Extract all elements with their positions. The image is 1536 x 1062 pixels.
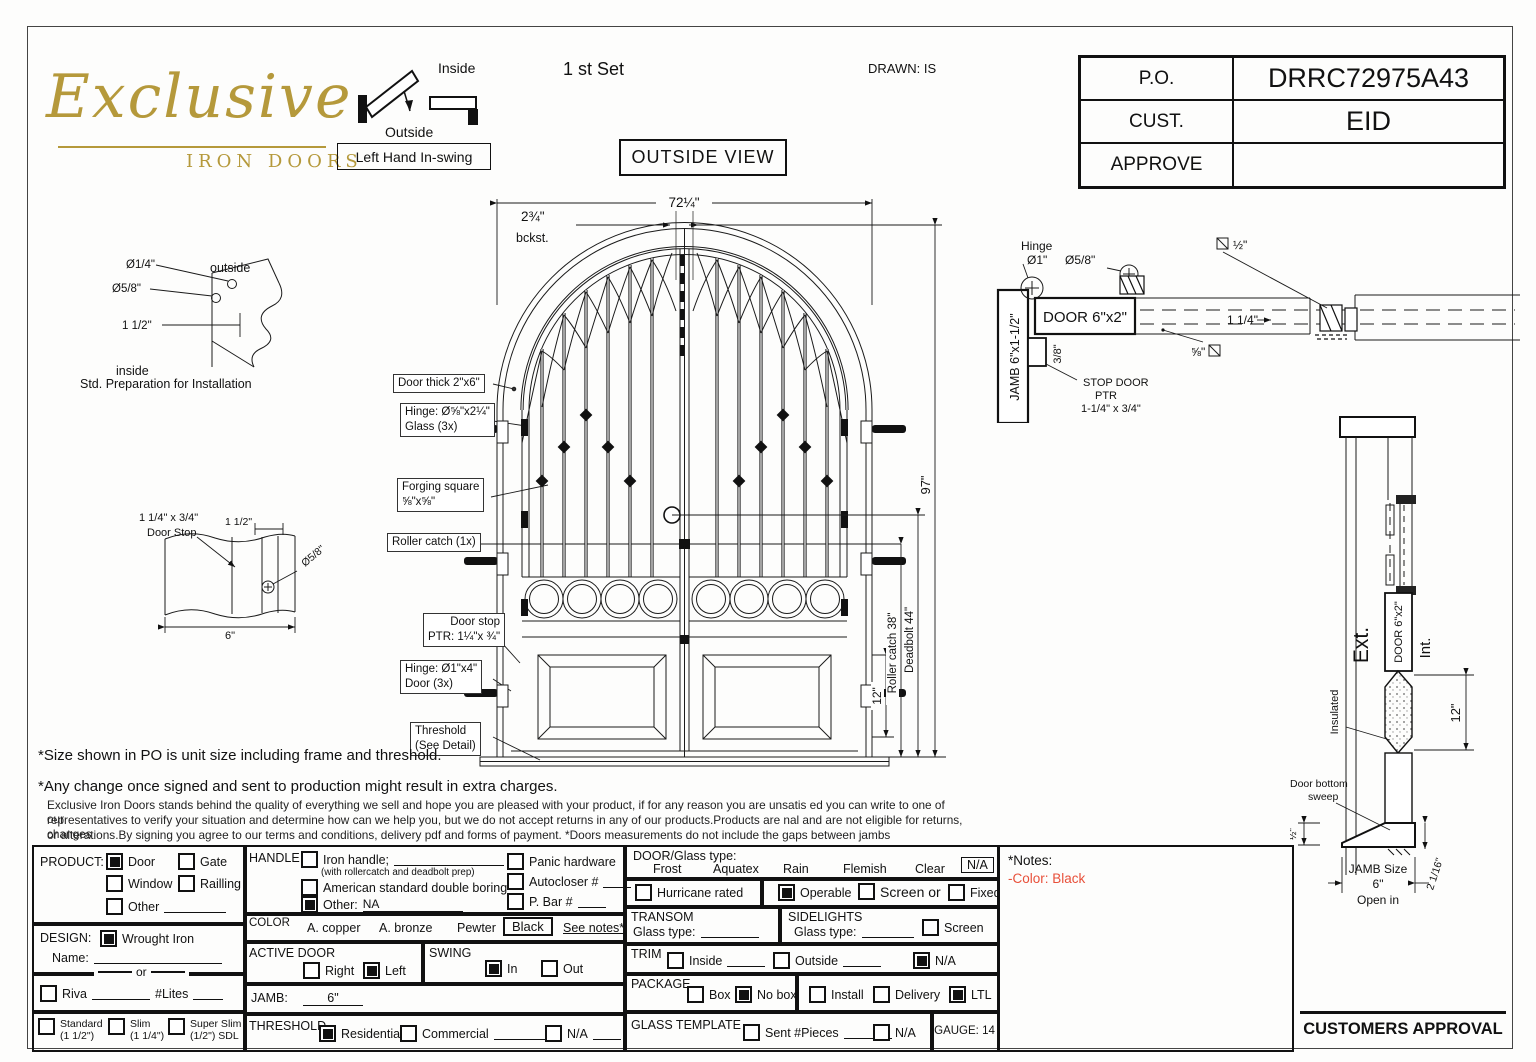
checkbox-hurricane[interactable] [635, 884, 652, 901]
color-see-notes[interactable]: See notes* [563, 921, 624, 935]
checkbox-box[interactable] [687, 986, 704, 1003]
callout-roller-catch: Roller catch (1x) [387, 533, 481, 552]
plan-dim114: 1 1/4" [1227, 313, 1258, 327]
plan-stop1: STOP DOOR [1083, 377, 1149, 389]
transom-label: TRANSOM [631, 910, 694, 924]
pbar-blank[interactable] [578, 896, 606, 908]
american-boring-label: American standard double boring [323, 881, 507, 895]
trim-inside-blank[interactable] [727, 955, 765, 967]
checkbox-product-window[interactable] [106, 875, 123, 892]
checkbox-slim[interactable] [108, 1018, 125, 1035]
checkbox-screen-or[interactable] [858, 883, 875, 900]
design-label: DESIGN: [40, 931, 91, 945]
section-open-in: Open in [1357, 893, 1399, 907]
glass-rain[interactable]: Rain [783, 862, 809, 876]
sidelights-cell: SIDELIGHTS Glass type: Screen [778, 905, 999, 946]
stop-name-label: Door Stop [147, 527, 197, 539]
glass-na[interactable]: N/A [961, 857, 994, 873]
checkbox-iron-handle[interactable] [301, 851, 318, 868]
trim-label: TRIM [631, 947, 662, 961]
checkbox-pbar[interactable] [507, 893, 524, 910]
jamb-cell: JAMB: 6" [243, 982, 627, 1016]
approve-value [1233, 143, 1504, 187]
section-ext-label: Ext. [1350, 627, 1373, 663]
checkbox-delivery[interactable] [873, 986, 890, 1003]
glass-flemish[interactable]: Flemish [843, 862, 887, 876]
checkbox-trim-na[interactable] [913, 952, 930, 969]
section-insulated-label: Insulated [1329, 690, 1341, 735]
sidelights-glass-label: Glass type: [794, 925, 857, 939]
or-label: or [136, 965, 147, 979]
handing-label: Left Hand In-swing [337, 143, 491, 170]
lites-blank[interactable] [193, 988, 223, 1000]
glass-template-cell: GLASS TEMPLATE Sent #Pieces N/A [623, 1010, 934, 1052]
handle-cell: HANDLE Iron handle; (with rollercatch an… [243, 845, 627, 916]
transom-glass-label: Glass type: [633, 925, 696, 939]
fixed-label: Fixed [970, 886, 1001, 900]
callout-door-stop-l1: Door stop [428, 615, 500, 630]
threshold-cell: THRESHOLD Residential Commercial N/A [243, 1012, 627, 1052]
install-dia1: Ø1/4" [126, 259, 155, 271]
ltl-label: LTL [971, 988, 992, 1002]
riva-cell: or Riva#Lites [32, 972, 247, 1014]
section-dim12: 12" [1448, 703, 1463, 722]
checkbox-install[interactable] [809, 986, 826, 1003]
standard-sub: (1 1/2") [60, 1030, 94, 1042]
inside-label: Inside [438, 60, 475, 76]
outside-label: Outside [385, 124, 433, 140]
stop-dia: Ø5/8" [299, 543, 327, 569]
checkbox-american-boring[interactable] [301, 879, 318, 896]
or-divider: or [94, 965, 189, 979]
panic-hardware-label: Panic hardware [529, 855, 616, 869]
callout-roller-text: Roller catch (1x) [392, 536, 476, 548]
active-door-label: ACTIVE DOOR [249, 946, 335, 960]
lites-label: #Lites [155, 987, 188, 1001]
po-table: P.O. DRRC72975A43 CUST. EID APPROVE [1078, 55, 1506, 189]
checkbox-trim-outside[interactable] [773, 952, 790, 969]
checkbox-sent-pieces[interactable] [743, 1024, 760, 1041]
glass-clear[interactable]: Clear [915, 862, 945, 876]
dim-backset-label: bckst. [516, 231, 549, 245]
po-value: DRRC72975A43 [1233, 57, 1504, 100]
threshold-na-blank[interactable] [593, 1028, 621, 1040]
plan-dim58sq: ⅝" [1191, 345, 1205, 359]
package-label: PACKAGE [631, 977, 691, 991]
checkbox-threshold-na[interactable] [545, 1025, 562, 1042]
pbar-label: P. Bar # [529, 895, 573, 909]
checkbox-product-railling[interactable] [178, 875, 195, 892]
callout-forging-square: Forging square ⅝"x⅝" [397, 478, 484, 512]
set-label: 1 st Set [563, 59, 624, 80]
glass-aquatex[interactable]: Aquatex [713, 862, 759, 876]
side-section-drawing: DOOR 6"x2" Int. Ext. Insulated 12" Door … [1290, 405, 1512, 910]
callout-door-thick: Door thick 2"x6" [393, 374, 485, 393]
checkbox-product-door[interactable] [106, 853, 123, 870]
checkbox-wrought-iron[interactable] [100, 930, 117, 947]
dim-panel: 12" [870, 687, 884, 705]
install-outside: outside [210, 261, 250, 275]
slim-sub: (1 1/4") [130, 1030, 164, 1042]
template-na-label: N/A [895, 1026, 916, 1040]
checkbox-trim-inside[interactable] [667, 952, 684, 969]
autocloser-label: Autocloser # [529, 875, 598, 889]
callout-door-hinge-l1: Hinge: Ø1"x4" [405, 662, 477, 677]
delivery-label: Delivery [895, 988, 940, 1002]
wrought-iron-label: Wrought Iron [122, 932, 194, 946]
notes-box: *Notes: -Color: Black [998, 845, 1294, 1052]
riva-blank[interactable] [92, 988, 150, 1000]
checkbox-fixed[interactable] [948, 884, 965, 901]
callout-door-stop: Door stop PTR: 1¼"x ¾" [423, 613, 505, 647]
section-sweep-l2: sweep [1308, 791, 1339, 803]
install-dia2: Ø5/8" [112, 283, 141, 295]
notes-color-note: -Color: Black [1008, 871, 1085, 886]
color-selected[interactable]: Black [503, 917, 553, 936]
checkbox-product-other[interactable] [106, 898, 123, 915]
product-railling-label: Railling [200, 877, 241, 891]
trim-inside-label: Inside [689, 954, 722, 968]
checkbox-template-na[interactable] [873, 1024, 890, 1041]
box-label: Box [709, 988, 731, 1002]
dim-height: 97" [918, 475, 933, 494]
callout-door-thick-text: Door thick 2"x6" [398, 377, 480, 389]
callout-forging-l2: ⅝"x⅝" [402, 495, 479, 510]
plan-door-label: DOOR 6"x2" [1043, 309, 1127, 326]
no-box-label: No box [757, 988, 797, 1002]
section-sweep-l1: Door bottom [1290, 778, 1348, 790]
view-title: OUTSIDE VIEW [619, 139, 787, 176]
section-jamb-size: JAMB Size [1349, 862, 1408, 876]
super-slim-label: Super Slim [190, 1018, 241, 1030]
checkbox-sidelights-screen[interactable] [922, 919, 939, 936]
iron-handle-sub: (with rollercatch and deadbolt prep) [321, 867, 475, 878]
threshold-na-label: N/A [567, 1027, 588, 1041]
drawn-label: DRAWN: IS [868, 61, 936, 76]
disclaimer-line1: *Size shown in PO is unit size including… [38, 747, 442, 764]
product-door-label: Door [128, 855, 155, 869]
checkbox-handle-other[interactable] [301, 896, 318, 913]
stop-dim1: 1 1/2" [225, 516, 252, 528]
product-other-blank[interactable] [164, 901, 226, 913]
install-inside: inside [116, 364, 149, 378]
trim-outside-label: Outside [795, 954, 838, 968]
plan-dia58: Ø5/8" [1065, 253, 1095, 267]
logo-flourish [58, 146, 326, 148]
notes-title: *Notes: [1008, 853, 1052, 868]
callout-door-stop-l2: PTR: 1¼"x ¾" [428, 630, 500, 645]
product-gate-label: Gate [200, 855, 227, 869]
product-window-label: Window [128, 877, 172, 891]
checkbox-active-left[interactable] [363, 962, 380, 979]
approve-label: APPROVE [1080, 143, 1233, 187]
frame-type-cell: Standard(1 1/2") Slim(1 1/4") Super Slim… [32, 1010, 247, 1052]
section-door-label: DOOR 6"x2" [1393, 601, 1405, 663]
callout-door-hinge-l2: Door (3x) [405, 677, 477, 692]
sent-pieces-label: Sent #Pieces [765, 1026, 839, 1040]
plan-stop2: PTR [1095, 390, 1117, 402]
checkbox-swing-out[interactable] [541, 960, 558, 977]
active-door-cell: ACTIVE DOOR Right Left [243, 940, 425, 986]
plan-jamb-label: JAMB 6"x1-1/2" [1008, 313, 1022, 400]
plan-hinge-label: Hinge [1021, 239, 1053, 253]
jamb-plan-detail-drawing: JAMB 6"x1-1/2" Hinge Ø1" Ø5/8" DOOR 6"x2… [995, 228, 1525, 423]
jamb-label: JAMB: [251, 991, 288, 1005]
installation-caption: Std. Preparation for Installation [80, 377, 340, 391]
cust-label: CUST. [1080, 100, 1233, 143]
logo-script: Exclusive [46, 62, 352, 132]
trim-outside-blank[interactable] [843, 955, 881, 967]
callout-forging-l1: Forging square [402, 480, 479, 495]
install-dim: 1 1/2" [122, 320, 152, 332]
dim-roller: Roller catch 38" [887, 613, 899, 694]
checkbox-residential[interactable] [319, 1025, 336, 1042]
design-name-blank[interactable] [94, 952, 222, 964]
stop-size-label: 1 1/4" x 3/4" [139, 512, 198, 524]
operable-label: Operable [800, 886, 851, 900]
color-label: COLOR [249, 917, 290, 929]
color-pewter[interactable]: Pewter [457, 921, 496, 935]
section-dim216: 2 1/16" [1424, 856, 1446, 891]
dim-backset: 2¾" [521, 209, 545, 224]
po-label: P.O. [1080, 57, 1233, 100]
checkbox-active-right[interactable] [303, 962, 320, 979]
checkbox-commercial[interactable] [400, 1025, 417, 1042]
swing-in-label: In [507, 962, 517, 976]
residential-label: Residential [341, 1027, 403, 1041]
callout-glass-hinge-l2: Glass (3x) [405, 420, 490, 435]
gauge-value: GAUGE: 14 [934, 1025, 995, 1037]
callout-door-hinge: Hinge: Ø1"x4" Door (3x) [400, 660, 482, 694]
glass-frost[interactable]: Frost [653, 862, 681, 876]
trim-na-label: N/A [935, 954, 956, 968]
jamb-value[interactable]: 6" [303, 991, 363, 1006]
stop-width: 6" [225, 630, 235, 642]
dim-deadbolt: Deadbolt 44" [904, 607, 916, 673]
checkbox-no-box[interactable] [735, 986, 752, 1003]
checkbox-riva[interactable] [40, 985, 57, 1002]
swing-cell: SWING In Out [421, 940, 627, 986]
checkbox-standard[interactable] [38, 1018, 55, 1035]
active-left-label: Left [385, 964, 406, 978]
section-jamb-size-val: 6" [1373, 877, 1384, 891]
checkbox-swing-in[interactable] [485, 960, 502, 977]
iron-handle-label: Iron handle; [323, 853, 389, 867]
section-int-label: Int. [1417, 638, 1434, 659]
plan-dim38: 3/8" [1052, 344, 1064, 363]
product-other-label: Other [128, 900, 159, 914]
dim-width: 72¼" [668, 195, 699, 210]
product-label: PRODUCT: [40, 855, 104, 869]
plan-stop3: 1-1/4" x 3/4" [1081, 403, 1141, 415]
commercial-label: Commercial [422, 1027, 489, 1041]
sidelights-glass-blank[interactable] [862, 926, 914, 938]
plan-dim12: ½" [1233, 238, 1247, 252]
glass-type-cell: DOOR/Glass type: Frost Aquatex Rain Flem… [623, 845, 999, 881]
sidelights-screen-label: Screen [944, 921, 984, 935]
super-slim-sub: (1/2") SDL [190, 1030, 239, 1042]
checkbox-ltl[interactable] [949, 986, 966, 1003]
threshold-label: THRESHOLD [249, 1019, 326, 1033]
active-right-label: Right [325, 964, 354, 978]
transom-cell: TRANSOM Glass type: [623, 905, 782, 946]
color-bronze[interactable]: A. bronze [379, 921, 433, 935]
sidelights-label: SIDELIGHTS [788, 910, 862, 924]
slim-label: Slim [130, 1018, 150, 1030]
handle-label: HANDLE [249, 851, 300, 865]
handle-other-label: Other: [323, 898, 358, 912]
checkbox-autocloser[interactable] [507, 873, 524, 890]
spec-sheet-page: Exclusive IRON DOORS Inside Outside Left… [0, 0, 1536, 1062]
door-stop-detail-drawing: 1 1/4" x 3/4" Door Stop 1 1/2" Ø5/8" 6" [135, 505, 350, 645]
handle-other-value[interactable]: NA [363, 897, 463, 912]
approval-label: CUSTOMERS APPROVAL [1285, 1020, 1521, 1039]
callout-glass-hinge-l1: Hinge: Ø⅝"x2¼" [405, 405, 490, 420]
design-name-label: Name: [52, 951, 89, 965]
product-cell: PRODUCT: Door Gate Window Railling Other [32, 845, 247, 926]
color-copper[interactable]: A. copper [307, 921, 361, 935]
swing-out-label: Out [563, 962, 583, 976]
cust-value: EID [1233, 100, 1504, 143]
iron-handle-blank[interactable] [394, 854, 504, 866]
commercial-blank[interactable] [494, 1028, 549, 1040]
screen-or-label: Screen or [880, 884, 941, 900]
hurricane-label: Hurricane rated [657, 886, 743, 900]
disclaimer-para3: or alterations.By signing you agree to o… [47, 828, 967, 842]
plan-hinge-dia: Ø1" [1027, 253, 1047, 267]
checkbox-super-slim[interactable] [168, 1018, 185, 1035]
gauge-cell: GAUGE: 14 [930, 1010, 999, 1052]
trim-cell: TRIM Inside Outside N/A [623, 942, 999, 976]
delivery-cell: Install Delivery LTL [795, 972, 999, 1014]
checkbox-panic-hardware[interactable] [507, 853, 524, 870]
glass-type-label: DOOR/Glass type: [633, 849, 737, 863]
swing-label: SWING [429, 946, 471, 960]
approval-signature-line[interactable] [1300, 1011, 1506, 1014]
callout-threshold-l1: Threshold [415, 724, 476, 739]
transom-glass-blank[interactable] [701, 926, 759, 938]
standard-label: Standard [60, 1018, 103, 1030]
package-cell: PACKAGE Box No box [623, 972, 799, 1014]
checkbox-operable[interactable] [778, 884, 795, 901]
riva-label: Riva [62, 987, 87, 1001]
install-label: Install [831, 988, 864, 1002]
installation-detail-drawing: Ø1/4" Ø5/8" 1 1/2" outside inside [100, 245, 350, 380]
glass-template-label: GLASS TEMPLATE [631, 1018, 741, 1032]
section-dimhalf: ½" [1290, 828, 1299, 840]
checkbox-product-gate[interactable] [178, 853, 195, 870]
callout-glass-hinge: Hinge: Ø⅝"x2¼" Glass (3x) [400, 403, 495, 437]
disclaimer-line2: *Any change once signed and sent to prod… [38, 778, 558, 795]
